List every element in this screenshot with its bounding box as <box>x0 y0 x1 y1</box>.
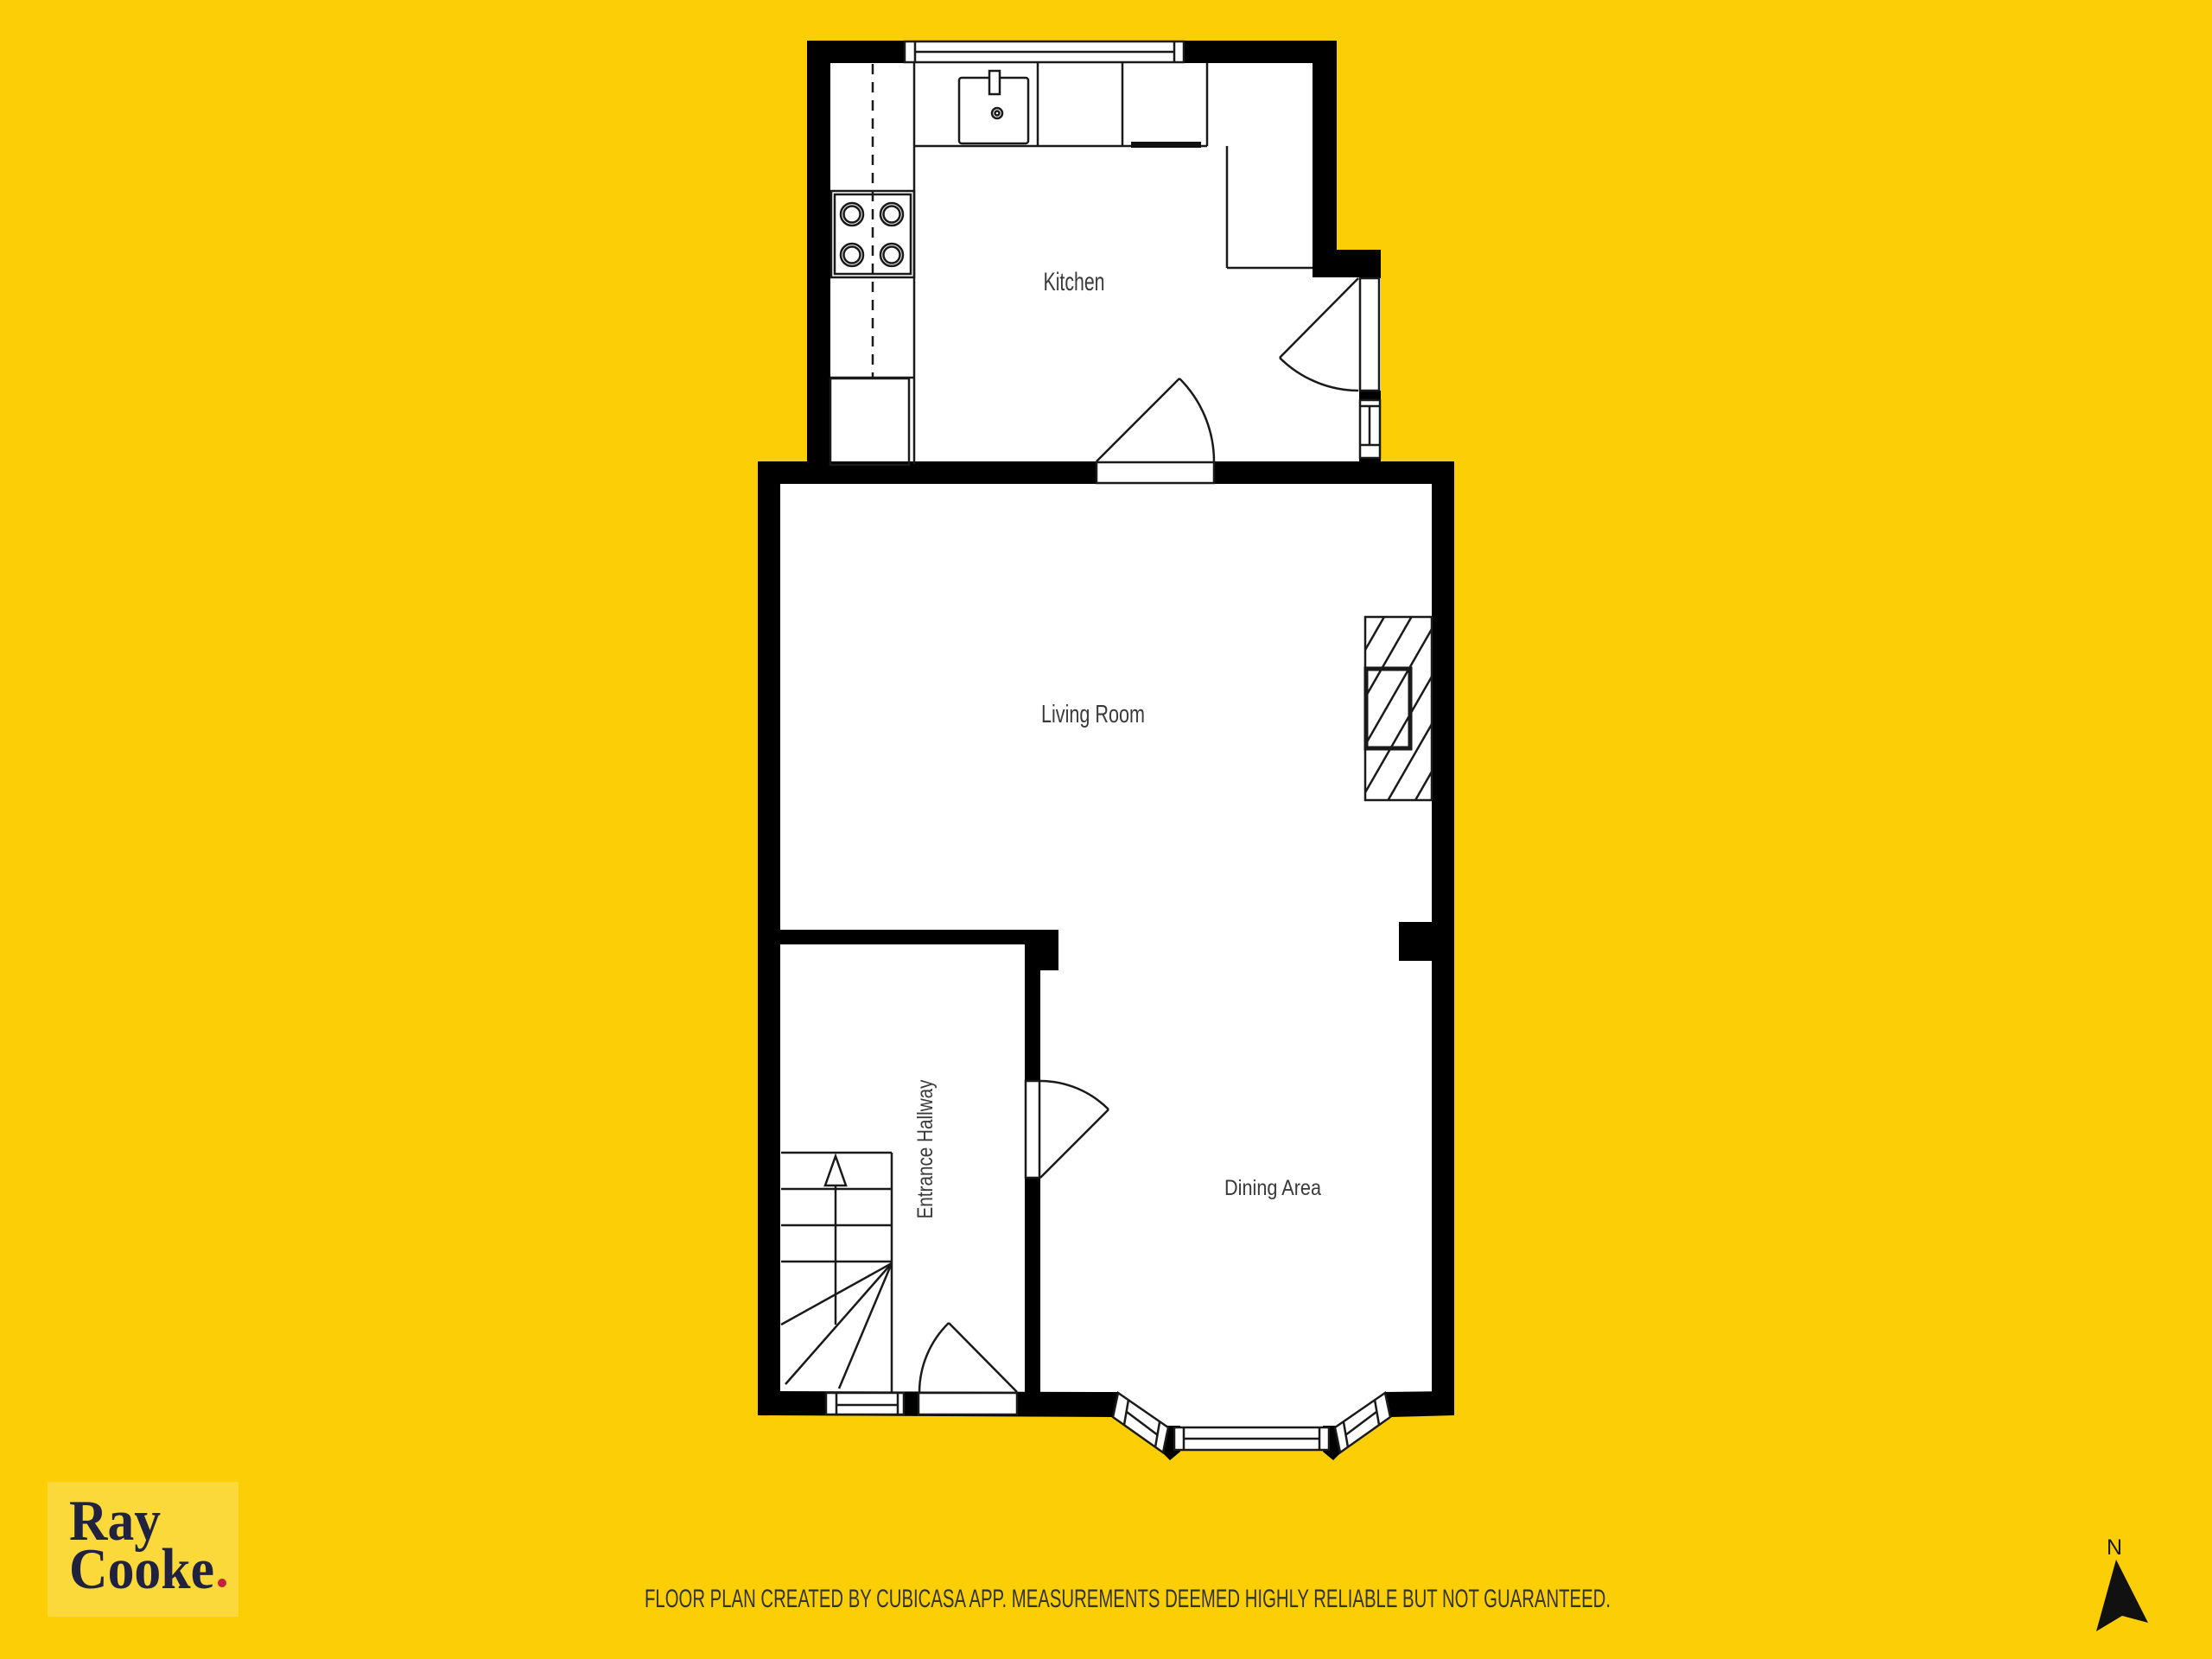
svg-text:FLOOR PLAN CREATED BY CUBICASA: FLOOR PLAN CREATED BY CUBICASA APP. MEAS… <box>645 1585 1611 1613</box>
svg-text:Dining Area: Dining Area <box>1224 1176 1321 1200</box>
svg-text:Kitchen: Kitchen <box>1044 268 1105 296</box>
svg-text:Entrance Hallway: Entrance Hallway <box>913 1079 938 1218</box>
svg-text:N: N <box>2107 1535 2122 1560</box>
svg-text:Cooke: Cooke <box>69 1537 214 1601</box>
svg-text:Living Room: Living Room <box>1041 701 1145 728</box>
